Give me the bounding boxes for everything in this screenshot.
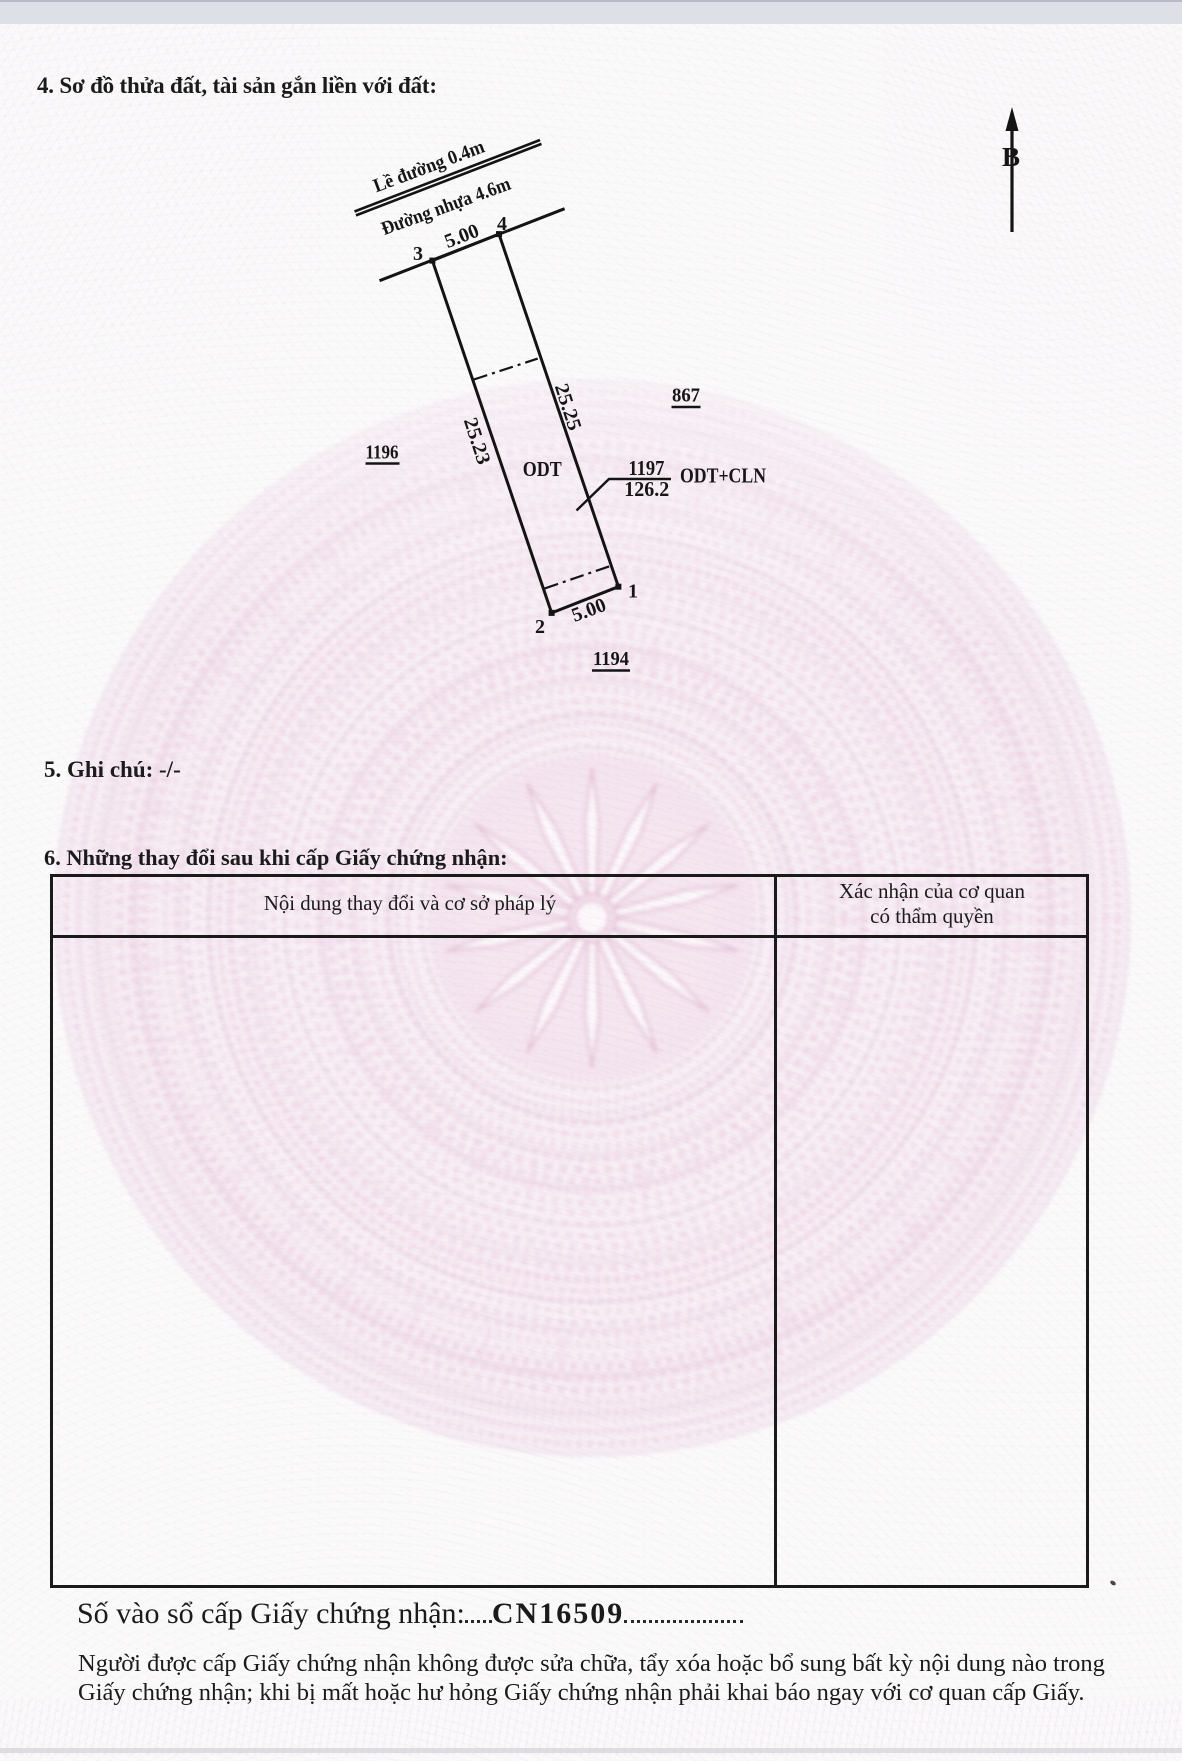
svg-text:1194: 1194 (593, 648, 629, 670)
svg-text:5.00: 5.00 (442, 220, 483, 253)
svg-text:1: 1 (628, 581, 638, 603)
svg-text:1196: 1196 (366, 442, 399, 464)
svg-text:ODT: ODT (523, 457, 562, 481)
svg-text:867: 867 (672, 385, 700, 407)
svg-text:3: 3 (413, 243, 423, 265)
svg-text:5.00: 5.00 (569, 594, 609, 627)
svg-text:B: B (1002, 142, 1020, 172)
svg-text:4: 4 (497, 213, 507, 235)
svg-text:2: 2 (535, 616, 545, 638)
svg-text:25.23: 25.23 (459, 415, 495, 467)
svg-text:ODT+CLN: ODT+CLN (680, 464, 766, 488)
svg-text:25.25: 25.25 (550, 381, 586, 433)
svg-text:126.2: 126.2 (624, 477, 669, 501)
